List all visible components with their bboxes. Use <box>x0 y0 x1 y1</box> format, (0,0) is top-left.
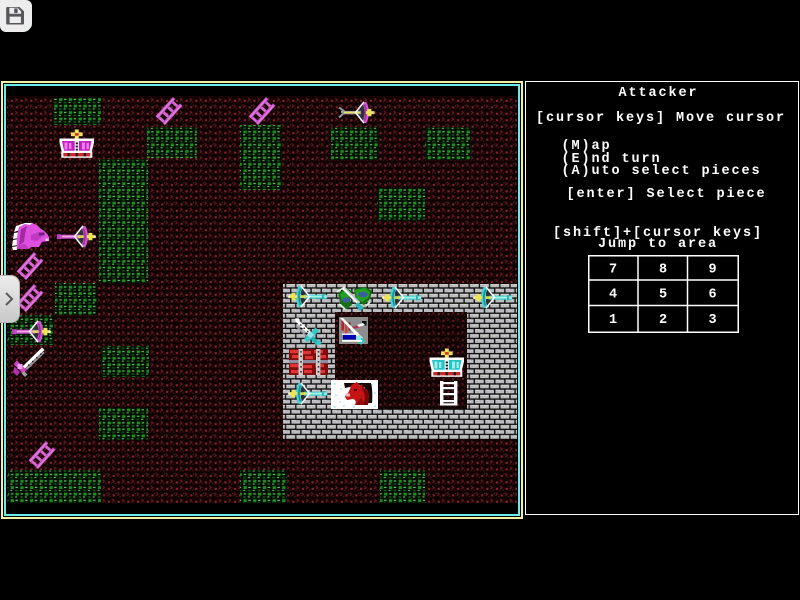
svg-text:5: 5 <box>659 288 667 303</box>
svg-text:8: 8 <box>659 263 667 278</box>
svg-text:7: 7 <box>609 263 617 278</box>
svg-text:3: 3 <box>708 313 716 328</box>
svg-text:1: 1 <box>609 313 617 328</box>
svg-text:4: 4 <box>609 288 617 303</box>
svg-text:6: 6 <box>708 288 716 303</box>
svg-text:9: 9 <box>708 263 716 278</box>
svg-text:2: 2 <box>659 313 667 328</box>
